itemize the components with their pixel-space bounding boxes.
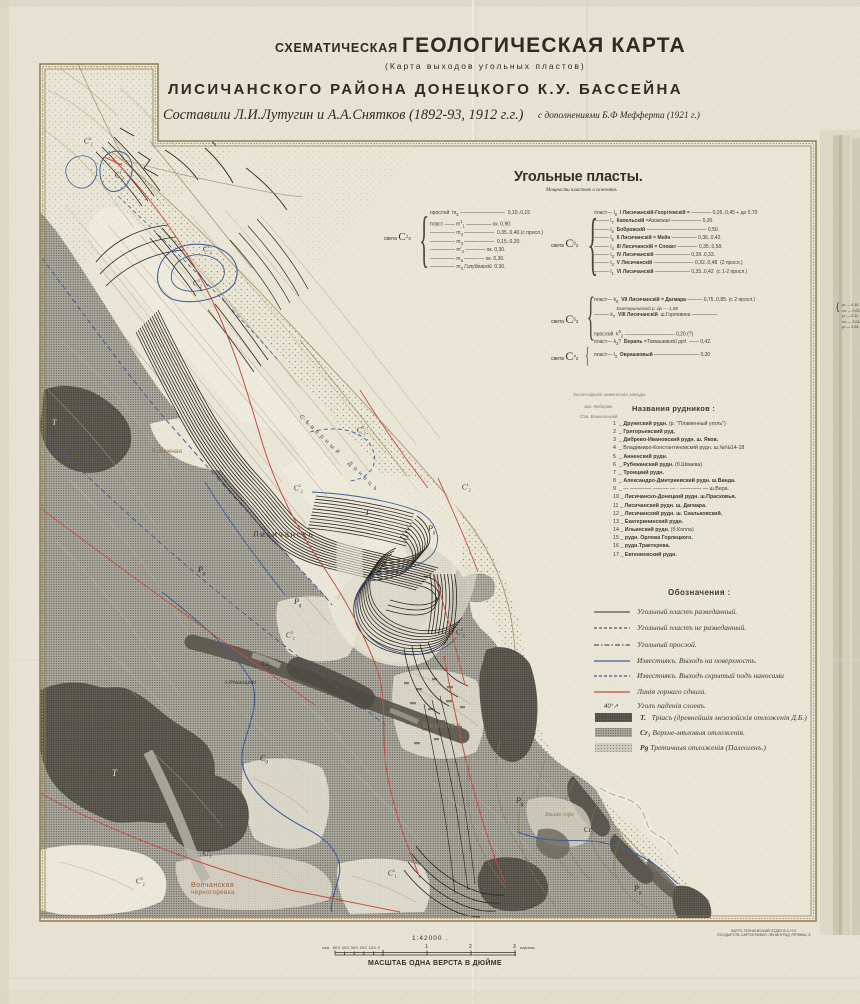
svg-text:40°↗: 40°↗	[604, 704, 619, 710]
